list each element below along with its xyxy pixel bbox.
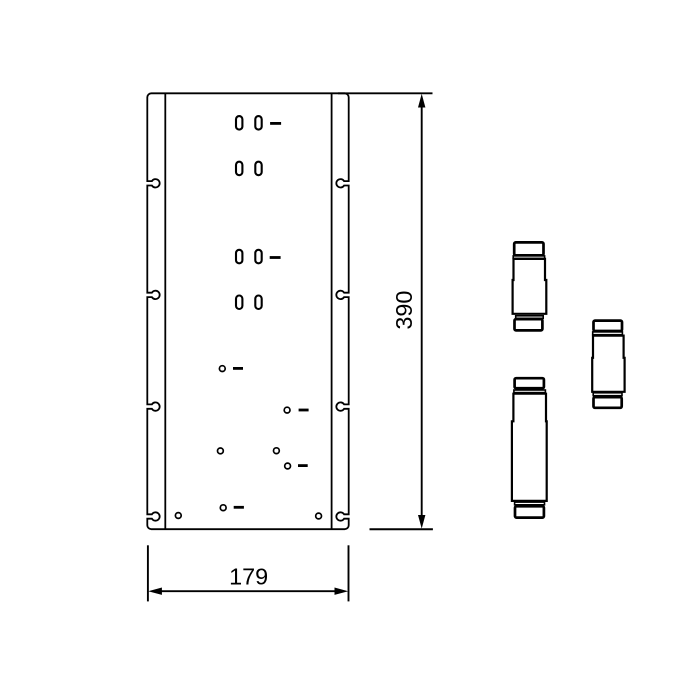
svg-text:179: 179 bbox=[229, 564, 268, 590]
svg-text:390: 390 bbox=[391, 291, 417, 330]
